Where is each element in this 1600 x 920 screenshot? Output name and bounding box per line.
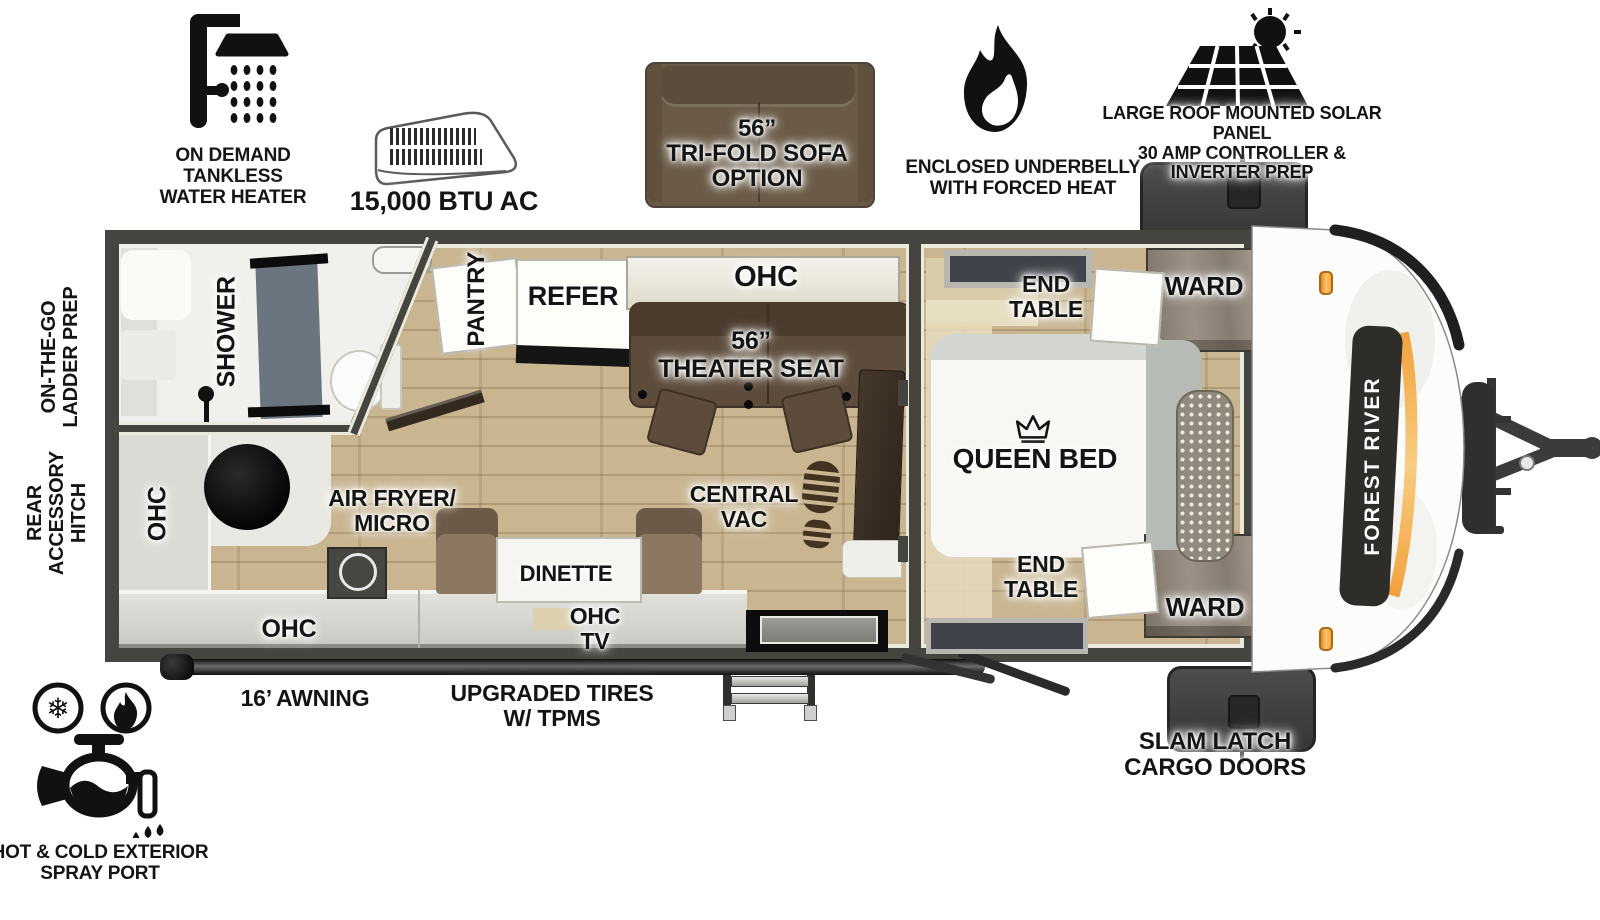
cupholder [744,400,753,409]
dinette-label: DINETTE [496,562,636,586]
feature-water-heater-label: ON DEMAND TANKLESS WATER HEATER [148,146,318,209]
cargo-doors-label: SLAM LATCH CARGO DOORS [1085,729,1345,782]
shower-door [255,259,322,419]
spray-port-icon: ❄ [22,680,182,838]
step-foot [723,705,736,721]
shower-head-icon [178,12,290,140]
marker-light [1320,272,1332,294]
ladder-prep-label: ON-THE-GO LADDER PREP [38,277,82,437]
brand-decal: FOREST RIVER [1361,376,1384,555]
refer-label: REFER [513,282,633,312]
ohc-tv-label: OHC TV [550,604,640,655]
feature-sofa-label: 56” TRI-FOLD SOFA OPTION [657,116,857,192]
entry-landing [842,540,902,578]
pantry-label: PANTRY [464,244,490,354]
svg-text:❄: ❄ [46,692,69,725]
solar-panel-icon [1148,6,1318,110]
kitchen-ohc-bottom-label: OHC [244,616,334,644]
shower-label: SHOWER [213,267,241,397]
marker-light [1320,628,1332,650]
spray-port-label: HOT & COLD EXTERIOR SPRAY PORT [0,843,210,885]
divider-hinge [898,536,908,562]
kitchen-sink [204,444,290,530]
bedroom-divider-wall [906,244,924,648]
bedroom-window [926,618,1088,654]
floorplan-diagram: ON DEMAND TANKLESS WATER HEATER 15,000 B… [0,0,1600,920]
headboard-panel [1176,390,1234,562]
sofa-backrest [661,66,855,104]
entry-step-plate [760,616,878,644]
bath-sink [121,250,191,320]
end-table-rear-label: END TABLE [986,552,1096,603]
ac-unit-icon [366,108,524,192]
bathroom-wall [119,422,355,435]
cupholder [842,392,851,401]
theater-seat-label: 56” THEATER SEAT [641,328,861,383]
tires-label: UPGRADED TIRES W/ TPMS [432,681,672,732]
kitchen-ohc-left-label: OHC [144,479,172,549]
divider-hinge [898,380,908,406]
awning-label: 16’ AWNING [205,686,405,711]
counter-seam [418,590,420,648]
step-tread [731,693,809,704]
feature-ac-label: 15,000 BTU AC [334,187,554,217]
rear-hitch-label: REAR ACCESSORY HITCH [24,438,90,588]
awning-bar [163,659,985,675]
front-cap-and-hitch: FOREST RIVER [1240,220,1600,710]
stove-burner-ring [339,553,377,591]
awning-end-cap [160,654,194,680]
end-table-front-label: END TABLE [991,272,1101,323]
kitchen-lower-run [119,590,747,648]
cupholder [638,390,647,399]
air-fryer-label: AIR FRYER/ MICRO [302,486,482,537]
cupholder [744,382,753,391]
bath-shelf [121,330,176,380]
crown-icon [1014,414,1052,446]
ohc-galley-label: OHC [716,262,816,294]
sofa-armrest-right [858,64,873,202]
feature-solar-label: LARGE ROOF MOUNTED SOLAR PANEL 30 AMP CO… [1097,104,1387,183]
step-tread [731,676,809,687]
central-vac-label: CENTRAL VAC [674,482,814,533]
flame-icon [952,22,1044,142]
queen-bed-label: QUEEN BED [925,444,1145,475]
a-frame-hitch [1450,378,1600,534]
step-foot [804,705,817,721]
